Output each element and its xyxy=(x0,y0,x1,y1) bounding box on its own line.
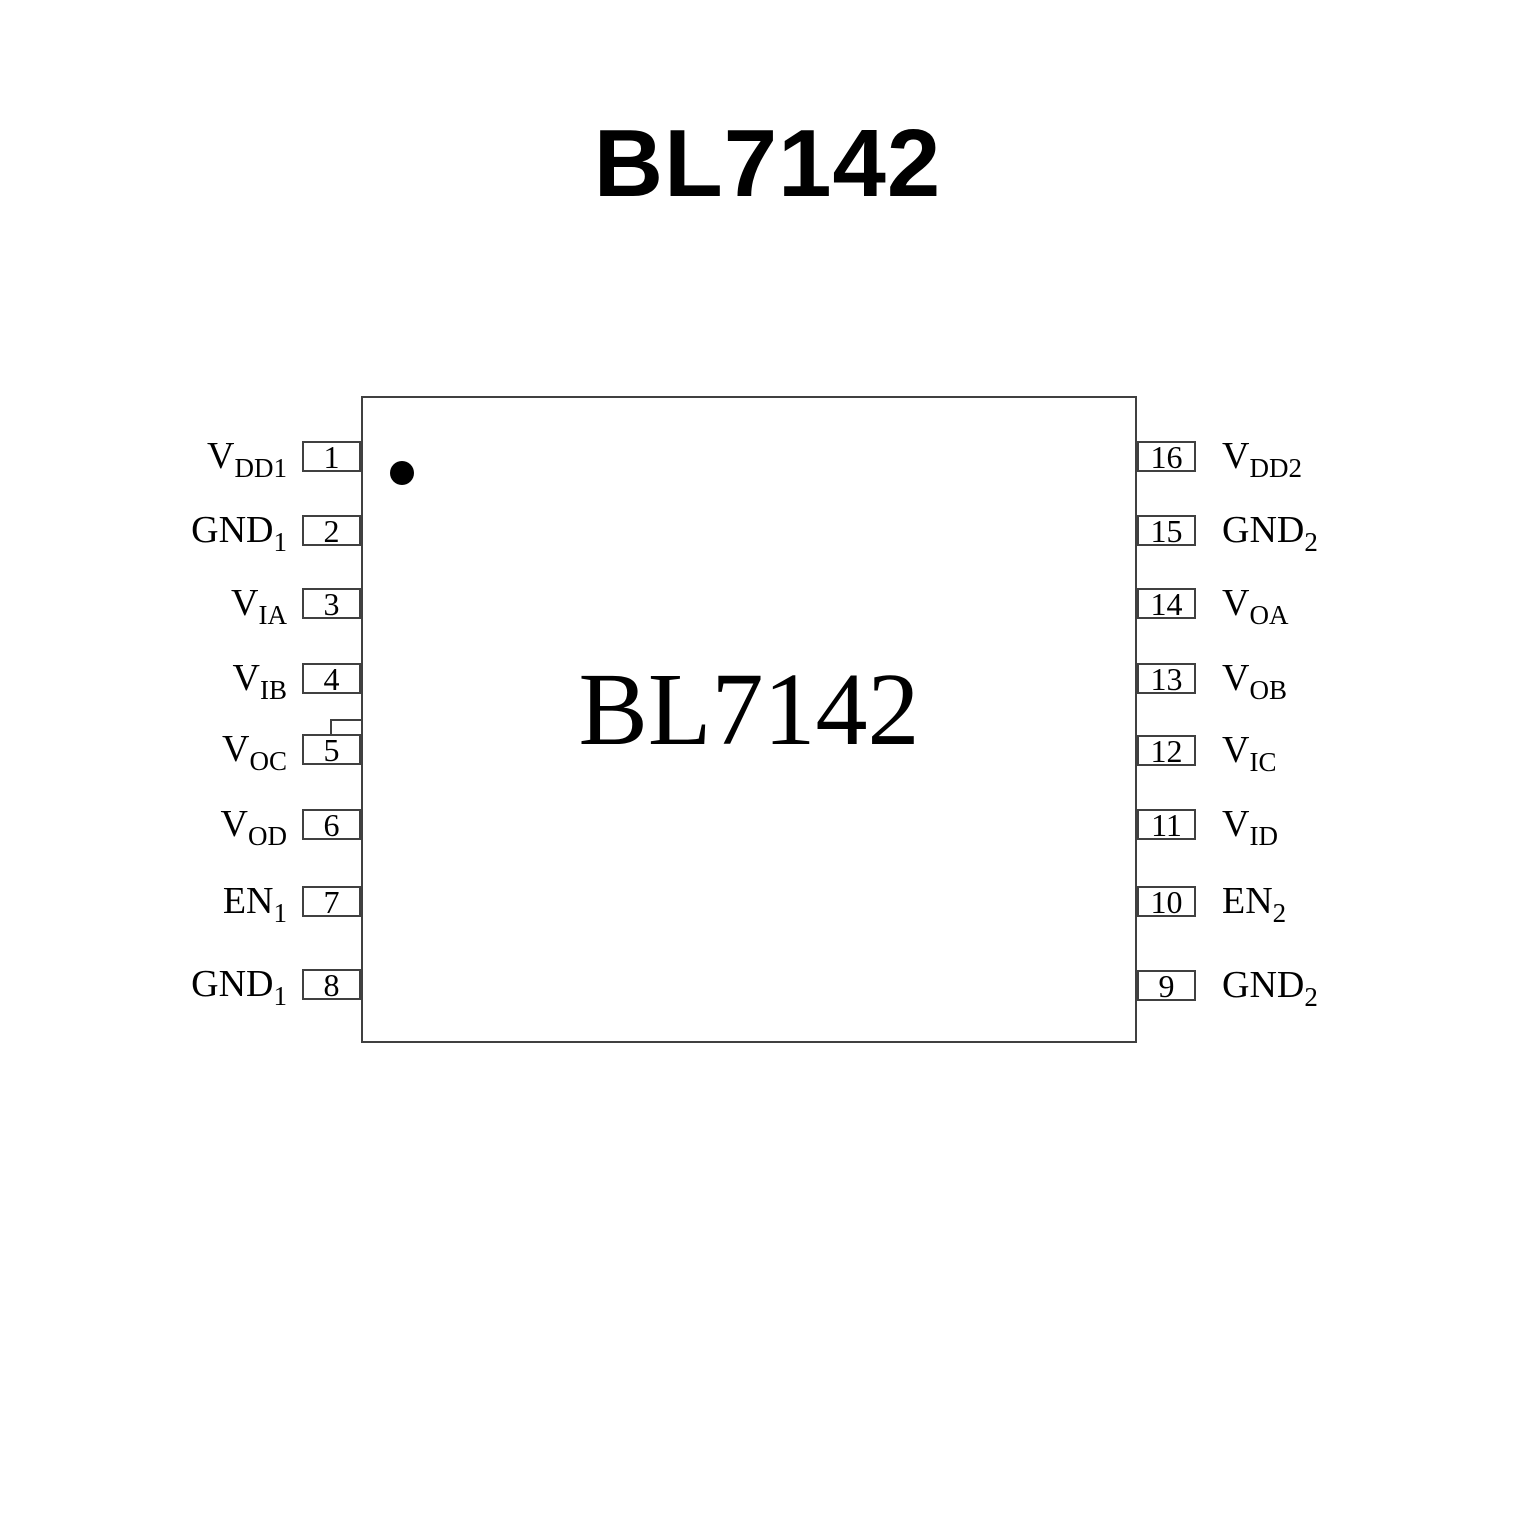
pin-label-3-subscript: IA xyxy=(259,600,288,630)
pin-box-6: 6 xyxy=(302,809,361,840)
pin-label-11-subscript: ID xyxy=(1249,821,1278,851)
pin-box-14: 14 xyxy=(1137,588,1196,619)
pin-label-4: VIB xyxy=(233,663,287,694)
pin-number-9: 9 xyxy=(1159,970,1175,1002)
pin-number-7: 7 xyxy=(324,886,340,918)
pin-label-4-subscript: IB xyxy=(260,675,287,705)
pin-number-6: 6 xyxy=(324,809,340,841)
pin-label-14: VOA xyxy=(1222,588,1288,619)
pin-label-8-subscript: 1 xyxy=(274,981,288,1011)
pin-box-10: 10 xyxy=(1137,886,1196,917)
pin-label-10: EN2 xyxy=(1222,886,1286,917)
pin-label-7-subscript: 1 xyxy=(274,898,288,928)
pin-label-7: EN1 xyxy=(223,886,287,917)
pinout-diagram-page: BL7142 BL7142 1 VDD1 2 GND1 3 VIA 4 VIB … xyxy=(0,0,1535,1535)
pin-box-2: 2 xyxy=(302,515,361,546)
pin-label-6: VOD xyxy=(221,809,287,840)
pin-label-5-subscript: OC xyxy=(249,746,287,776)
pin-box-7: 7 xyxy=(302,886,361,917)
pin-label-2: GND1 xyxy=(191,515,287,546)
pin-number-10: 10 xyxy=(1151,886,1183,918)
pin-label-16-subscript: DD2 xyxy=(1249,453,1302,483)
pin-number-13: 13 xyxy=(1151,663,1183,695)
pin-box-4: 4 xyxy=(302,663,361,694)
pin-label-14-subscript: OA xyxy=(1249,600,1288,630)
pin-label-2-subscript: 1 xyxy=(274,527,288,557)
pin-number-3: 3 xyxy=(324,588,340,620)
pin-label-11: VID xyxy=(1222,809,1278,840)
pin-label-12-subscript: IC xyxy=(1249,747,1276,777)
pin-label-15: GND2 xyxy=(1222,515,1318,546)
pin-number-16: 16 xyxy=(1151,441,1183,473)
pin-box-3: 3 xyxy=(302,588,361,619)
pin-number-8: 8 xyxy=(324,969,340,1001)
pin-number-15: 15 xyxy=(1151,515,1183,547)
pin-label-8: GND1 xyxy=(191,969,287,1000)
pin-box-16: 16 xyxy=(1137,441,1196,472)
pin-label-12: VIC xyxy=(1222,735,1276,766)
pin-label-3: VIA xyxy=(231,588,287,619)
pin-label-15-subscript: 2 xyxy=(1304,527,1318,557)
pin-box-11: 11 xyxy=(1137,809,1196,840)
pin-box-12: 12 xyxy=(1137,735,1196,766)
chip-label: BL7142 xyxy=(361,658,1137,762)
pin-box-5: 5 xyxy=(302,734,361,765)
pin-number-12: 12 xyxy=(1151,735,1183,767)
pin-box-8: 8 xyxy=(302,969,361,1000)
pin-label-13: VOB xyxy=(1222,663,1287,694)
pin-number-11: 11 xyxy=(1151,809,1182,841)
pin-box-13: 13 xyxy=(1137,663,1196,694)
pin-number-1: 1 xyxy=(324,441,340,473)
pin-label-13-subscript: OB xyxy=(1249,675,1287,705)
pin-box-15: 15 xyxy=(1137,515,1196,546)
pin-label-16: VDD2 xyxy=(1222,441,1302,472)
pin-label-9-subscript: 2 xyxy=(1304,982,1318,1012)
pin-label-1: VDD1 xyxy=(207,441,287,472)
pin-box-9: 9 xyxy=(1137,970,1196,1001)
pin-number-2: 2 xyxy=(324,515,340,547)
pin-number-14: 14 xyxy=(1151,588,1183,620)
pin-number-5: 5 xyxy=(324,734,340,766)
page-title: BL7142 xyxy=(0,116,1535,212)
pin-number-4: 4 xyxy=(324,663,340,695)
pin-label-1-subscript: DD1 xyxy=(235,453,288,483)
pin-label-9: GND2 xyxy=(1222,970,1318,1001)
pin-label-10-subscript: 2 xyxy=(1273,898,1287,928)
pin1-indicator-dot xyxy=(390,461,414,485)
pin-box-1: 1 xyxy=(302,441,361,472)
pin-label-5: VOC xyxy=(222,734,287,765)
pin-label-6-subscript: OD xyxy=(248,821,287,851)
